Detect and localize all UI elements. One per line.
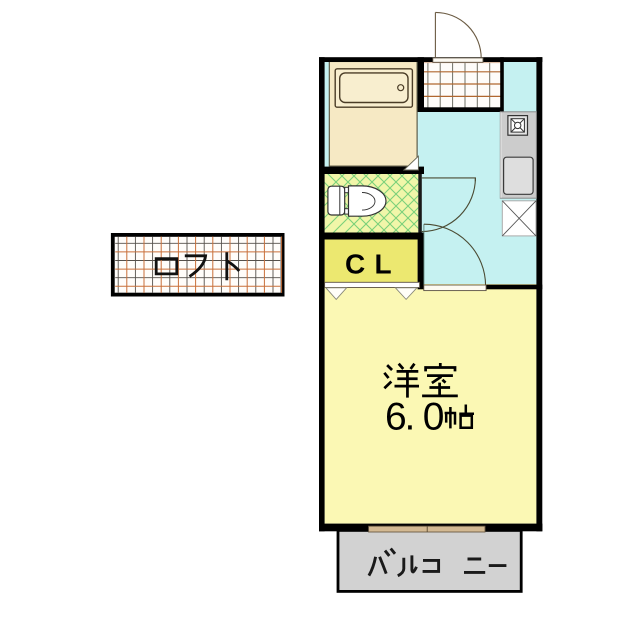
svg-text:0: 0 bbox=[423, 396, 445, 439]
svg-text:L: L bbox=[375, 249, 392, 280]
svg-text:C: C bbox=[345, 249, 365, 280]
svg-text:6: 6 bbox=[385, 396, 407, 439]
svg-text:.: . bbox=[405, 396, 416, 439]
